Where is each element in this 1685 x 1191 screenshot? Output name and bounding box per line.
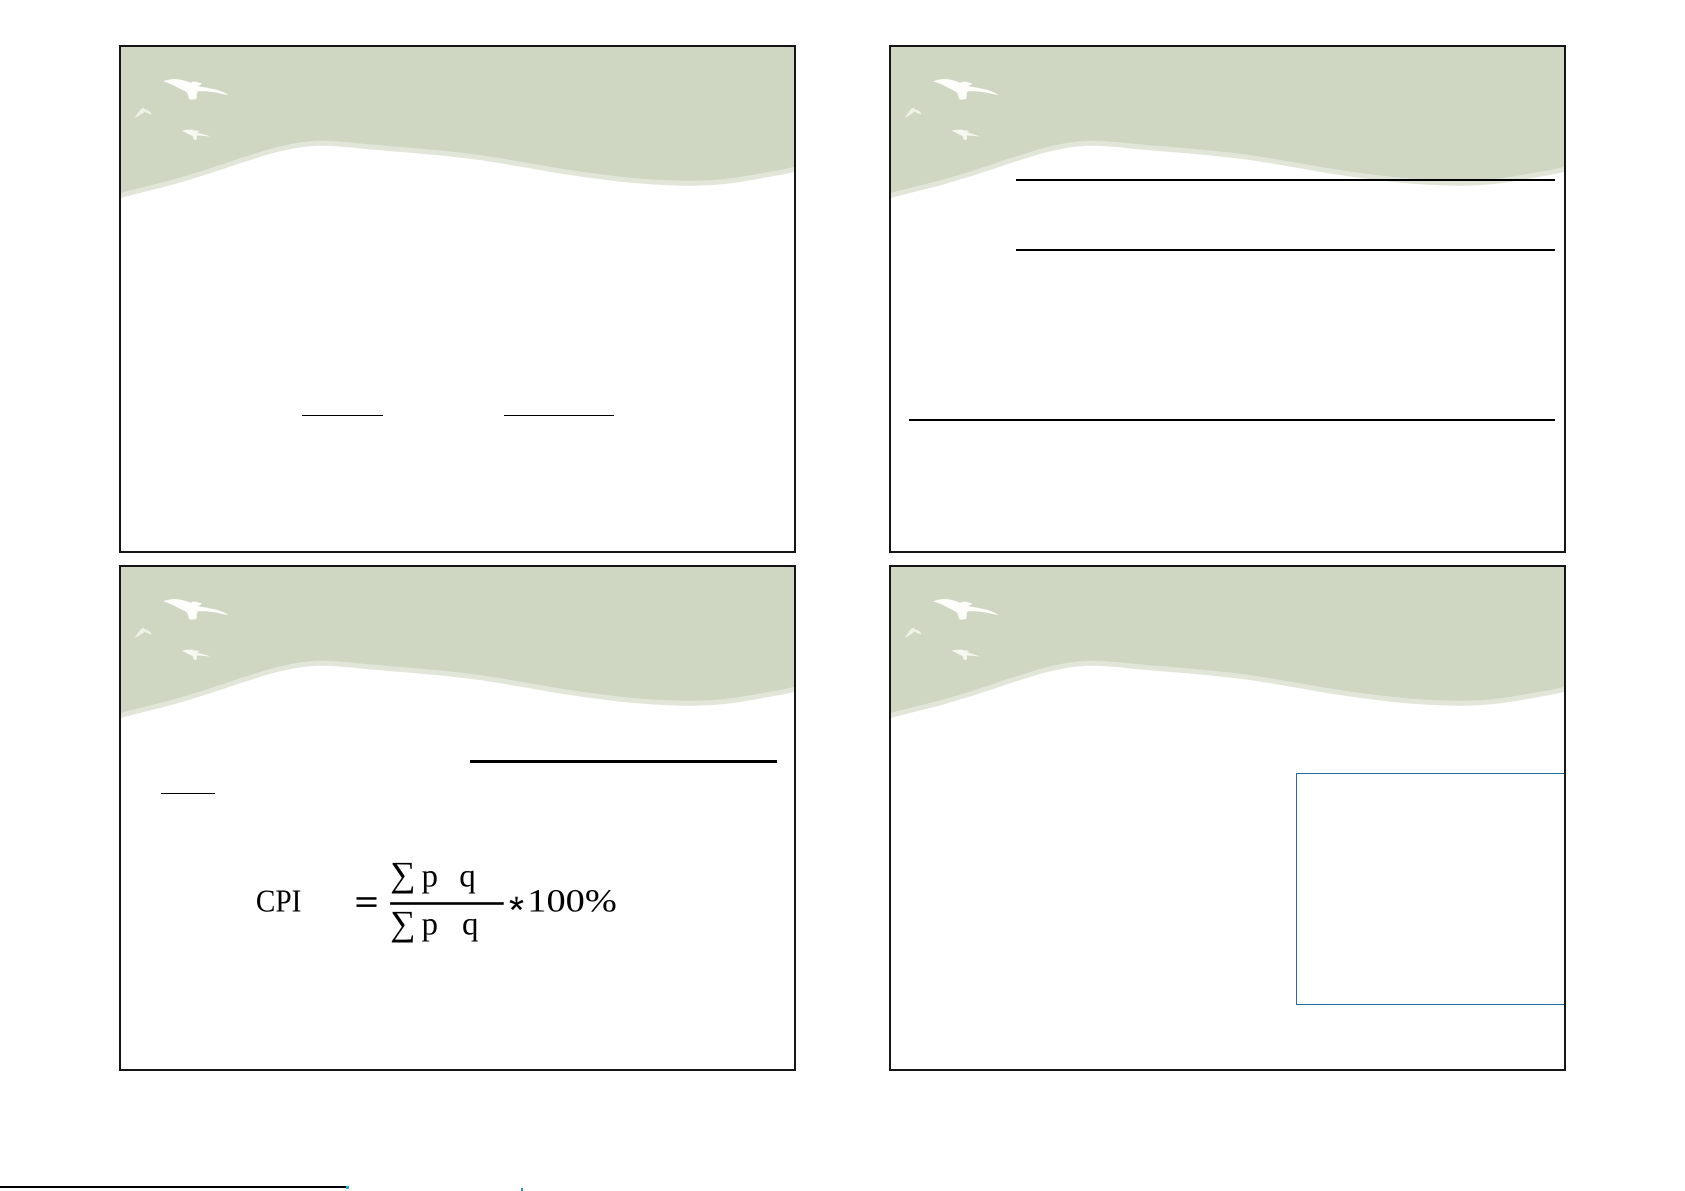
svg-text:∑: ∑ (390, 902, 415, 942)
svg-text:∑: ∑ (390, 853, 415, 893)
svg-text:CPI: CPI (255, 882, 301, 918)
svg-text:100%: 100% (527, 883, 617, 919)
svg-text:q: q (459, 858, 476, 894)
svg-text:p: p (421, 906, 438, 942)
svg-text:q: q (462, 906, 479, 942)
svg-text:p: p (421, 858, 438, 894)
